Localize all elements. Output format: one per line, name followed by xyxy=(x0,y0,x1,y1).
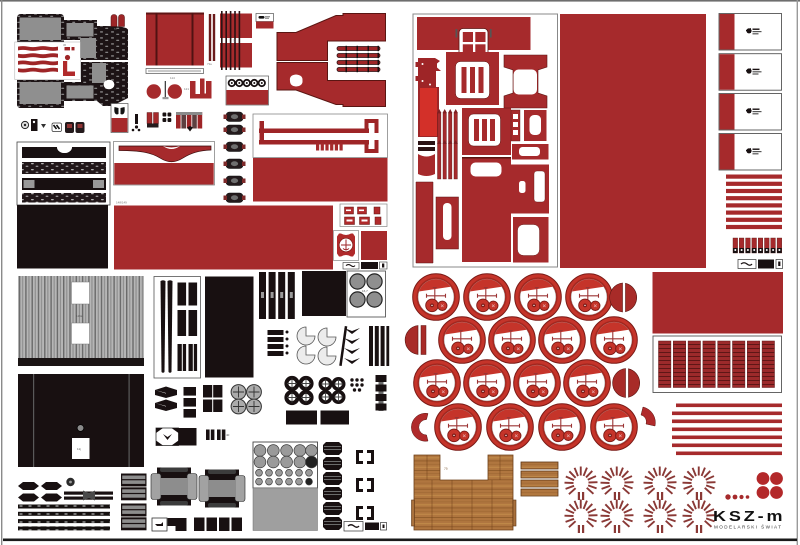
svg-text:40: 40 xyxy=(226,433,230,437)
svg-text:16,7: 16,7 xyxy=(362,289,368,293)
svg-text:MODELARSKI ŚWIAT: MODELARSKI ŚWIAT xyxy=(714,523,782,530)
svg-text:116a: 116a xyxy=(76,314,83,318)
svg-text:KSZ-m: KSZ-m xyxy=(713,508,783,524)
svg-text:79: 79 xyxy=(444,467,448,471)
svg-text:73a: 73a xyxy=(207,62,212,66)
svg-text:36: 36 xyxy=(63,43,67,47)
svg-text:72: 72 xyxy=(233,39,237,43)
svg-text:11j: 11j xyxy=(77,447,81,451)
svg-text:148/149: 148/149 xyxy=(116,201,127,205)
svg-text:57: 57 xyxy=(114,27,118,31)
svg-text:114: 114 xyxy=(170,76,175,80)
svg-text:121: 121 xyxy=(184,87,189,91)
